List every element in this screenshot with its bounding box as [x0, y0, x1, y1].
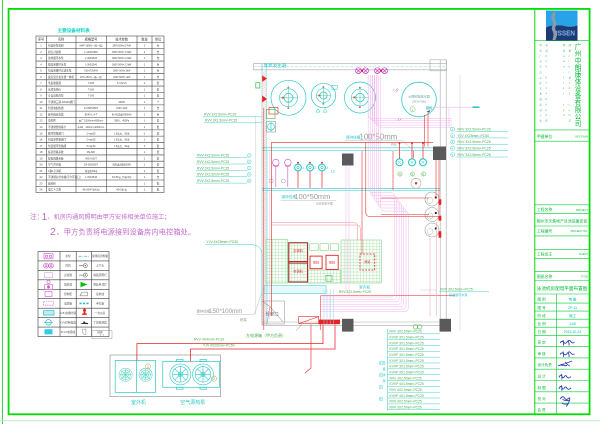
- svg-text:恒温热泵机组: 恒温热泵机组: [48, 44, 64, 48]
- svg-text:(3KW/3台): (3KW/3台): [412, 99, 426, 104]
- svg-text:主要设备材料表: 主要设备材料表: [58, 27, 91, 34]
- svg-text:400V-500T: 400V-500T: [85, 157, 97, 160]
- svg-text:40×5米-右: 40×5米-右: [116, 188, 128, 192]
- svg-text:限: 限: [575, 105, 582, 114]
- svg-text:按摩池循环水泵: 按摩池循环水泵: [48, 62, 67, 66]
- svg-text:RVV 3X2.5mm²-PC25: RVV 3X2.5mm²-PC25: [339, 290, 371, 294]
- svg-text:工程编号: 工程编号: [537, 229, 552, 234]
- svg-text:KVVP 4X1.5mm²-PC25: KVVP 4X1.5mm²-PC25: [390, 382, 424, 386]
- svg-text:工程名称: 工程名称: [537, 207, 552, 212]
- svg-text:检修口: 检修口: [266, 311, 279, 318]
- svg-text:泳池机房配电平面布置图: 泳池机房配电平面布置图: [537, 285, 588, 292]
- svg-text:全自动投药泵: 全自动投药泵: [48, 94, 64, 98]
- svg-text:RVV 3X2.5mm²-PC25: RVV 3X2.5mm²-PC25: [390, 376, 422, 380]
- svg-text:投药管路系统: 投药管路系统: [48, 150, 64, 154]
- svg-text:制 图: 制 图: [538, 385, 547, 390]
- svg-text:恒温循环水泵: 恒温循环水泵: [449, 292, 468, 297]
- svg-text:5-4.5m/h: 5-4.5m/h: [117, 82, 127, 85]
- svg-text:手孔箱: 手孔箱: [96, 301, 104, 305]
- svg-text:中: 中: [575, 56, 582, 65]
- svg-text:R.VV电源线: R.VV电源线: [61, 330, 76, 334]
- svg-text:恒温循环管路阀: 恒温循环管路阀: [48, 144, 67, 148]
- svg-text:砂缸过滤器: 砂缸过滤器: [48, 50, 61, 54]
- svg-text:12: 12: [331, 169, 336, 174]
- svg-text:m: m: [569, 115, 571, 117]
- svg-text:室内机: 室内机: [359, 284, 371, 289]
- svg-text:380V 50Hz 1.5kW: 380V 50Hz 1.5kW: [112, 51, 132, 54]
- svg-text:批: 批: [157, 181, 160, 185]
- svg-text:批: 批: [157, 125, 160, 129]
- svg-text:RVV 3X2.5mm²-PC25: RVV 3X2.5mm²-PC25: [458, 128, 491, 132]
- svg-text:CFS-150T(一拖一台): CFS-150T(一拖一台): [80, 75, 102, 79]
- svg-text:桥架: 桥架: [391, 143, 397, 147]
- svg-text:广: 广: [575, 42, 582, 51]
- svg-text:台: 台: [157, 175, 160, 179]
- svg-text:4: 4: [399, 173, 401, 177]
- svg-text:水质监测仪: 水质监测仪: [48, 87, 61, 91]
- svg-text:体: 体: [575, 77, 582, 86]
- svg-text:RVV 3X2.5mm²-PC25: RVV 3X2.5mm²-PC25: [390, 406, 422, 410]
- svg-text:水泵: 水泵: [65, 254, 71, 258]
- svg-text:D-mφ50: D-mφ50: [87, 139, 96, 142]
- svg-text:PROJECT NO.: PROJECT NO.: [571, 229, 589, 233]
- svg-text:380V、400Pa: 380V、400Pa: [114, 120, 130, 123]
- svg-text:L-700/2540: L-700/2540: [85, 176, 98, 179]
- svg-text:图 别: 图 别: [538, 297, 547, 302]
- svg-text:RVV 3X2.5mm²-PC25: RVV 3X2.5mm²-PC25: [458, 147, 491, 151]
- svg-text:丁烷探测器: 丁烷探测器: [93, 320, 107, 324]
- svg-text:KVVP 3X1.5mm²-PC25: KVVP 3X1.5mm²-PC25: [390, 347, 424, 351]
- svg-text:大棚树脂温水器: 大棚树脂温水器: [408, 94, 430, 99]
- svg-text:A-150H/250T: A-150H/250T: [84, 107, 99, 110]
- svg-text:备: 备: [575, 91, 582, 100]
- svg-text:φ110、200mm×2000mm: φ110、200mm×2000mm: [78, 126, 104, 129]
- svg-text:套: 套: [157, 131, 160, 135]
- svg-text:AQ-6725KW: AQ-6725KW: [84, 70, 98, 73]
- svg-text:台: 台: [157, 56, 160, 60]
- svg-text:2: 2: [50, 226, 56, 238]
- svg-text:·: ·: [313, 245, 314, 249]
- svg-text:L-300/2540: L-300/2540: [85, 57, 98, 60]
- svg-text:康: 康: [575, 70, 582, 79]
- svg-text:恒温池管路阀门: 恒温池管路阀门: [48, 138, 67, 142]
- svg-text:台: 台: [157, 62, 160, 66]
- svg-text:MAP-160H(一拖一低): MAP-160H(一拖一低): [80, 44, 103, 48]
- svg-text:规格型号: 规格型号: [85, 36, 98, 41]
- svg-text:1:1: 1:1: [100, 333, 105, 337]
- svg-text:1.6压力、40米: 1.6压力、40米: [114, 144, 130, 148]
- svg-text:6: 6: [422, 173, 424, 177]
- svg-text:T-300: T-300: [88, 95, 95, 98]
- svg-text:RVV 4X2.5mm²-PC25: RVV 4X2.5mm²-PC25: [390, 388, 422, 392]
- svg-text:过滤器: 过滤器: [64, 273, 72, 277]
- svg-text:风机: 风机: [65, 264, 71, 268]
- svg-text:套: 套: [157, 156, 160, 160]
- svg-text:恒温池循环过滤水泵: 恒温池循环过滤水泵: [48, 69, 72, 73]
- svg-text:1.6压力、50米: 1.6压力、50米: [114, 138, 130, 142]
- svg-text:电源箱: 电源箱: [64, 301, 72, 305]
- svg-text:校 对: 校 对: [538, 396, 547, 401]
- svg-text:套: 套: [157, 163, 160, 167]
- svg-text:数量: 数量: [141, 36, 148, 41]
- svg-text:不锈钢管抱箍卡: 不锈钢管抱箍卡: [48, 125, 67, 129]
- svg-text:毛发收集器: 毛发收集器: [48, 81, 61, 85]
- svg-text:台: 台: [157, 50, 160, 54]
- svg-text:KVVP 3X1.5mm²-PC25: KVVP 3X1.5mm²-PC25: [390, 365, 424, 369]
- svg-text:380V/50Hz/17kW: 380V/50Hz/17kW: [112, 45, 131, 48]
- svg-text:RVV 3X2.5mm²-PC25: RVV 3X2.5mm²-PC25: [458, 153, 491, 157]
- svg-text:桥架: 桥架: [240, 317, 247, 322]
- svg-text:台: 台: [157, 106, 160, 110]
- svg-text:KVVP 4X1.5mm²-PC25: KVVP 4X1.5mm²-PC25: [390, 394, 424, 398]
- svg-text:臭氧混合发生器一体机: 臭氧混合发生器一体机: [48, 75, 74, 79]
- svg-text:m: m: [563, 115, 565, 117]
- svg-text:柳州市天焦地产泳池设备安装: 柳州市天焦地产泳池设备安装: [537, 219, 588, 224]
- svg-text:RVV 3X2.5mm²-PC25: RVV 3X2.5mm²-PC25: [204, 113, 236, 117]
- svg-text:套: 套: [157, 169, 160, 173]
- svg-text:·: ·: [323, 245, 324, 249]
- svg-text:5: 5: [411, 173, 413, 177]
- svg-text:电 施: 电 施: [569, 297, 577, 302]
- svg-text:KVVP 3X1.5mm²-PC25: KVVP 3X1.5mm²-PC25: [390, 359, 424, 363]
- svg-text:D-mφ40: D-mφ40: [87, 145, 96, 148]
- svg-text:一次仪表: 一次仪表: [95, 311, 106, 315]
- svg-text:比 例: 比 例: [538, 321, 547, 326]
- svg-text:各: 各: [383, 366, 386, 371]
- svg-text:套: 套: [157, 94, 160, 98]
- svg-text:100*50mm: 100*50mm: [295, 192, 331, 201]
- svg-text:审 核: 审 核: [538, 351, 547, 356]
- svg-text:接地线: 接地线: [96, 292, 104, 296]
- svg-text:泵: 泵: [383, 378, 386, 383]
- svg-text:套: 套: [157, 81, 160, 85]
- svg-text:RVV 4X4mm²-PC32: RVV 4X4mm²-PC32: [194, 337, 224, 341]
- svg-text:设: 设: [575, 84, 582, 93]
- svg-text:不锈钢对丝水嘴(带卡环接口): 不锈钢对丝水嘴(带卡环接口): [48, 175, 81, 179]
- svg-text:州: 州: [575, 51, 582, 58]
- svg-text:KVVP 3X1.5mm²-PC25: KVVP 3X1.5mm²-PC25: [390, 341, 424, 345]
- svg-text:司: 司: [575, 120, 582, 128]
- svg-text:D-mφ50: D-mφ50: [87, 132, 96, 135]
- svg-text:暗装照明灯: 暗装照明灯: [93, 273, 107, 277]
- svg-text:1: 1: [411, 108, 413, 112]
- svg-text:施工: 施工: [569, 313, 576, 318]
- svg-text:由厂方300mm×850mm: 由厂方300mm×850mm: [79, 119, 104, 123]
- svg-text:侧装吊顶灯: 侧装吊顶灯: [93, 283, 107, 287]
- svg-text:40×50以上5米/2台: 40×50以上5米/2台: [112, 175, 132, 179]
- svg-text:KVVP 3X1.5mm²-PC25: KVVP 3X1.5mm²-PC25: [390, 371, 424, 375]
- svg-text:配电线路系统: 配电线路系统: [48, 156, 64, 160]
- svg-text:RVV 3X2.5mm²-PC25: RVV 3X2.5mm²-PC25: [441, 288, 473, 292]
- svg-text:设 计: 设 计: [538, 374, 547, 379]
- svg-text:套: 套: [157, 87, 160, 91]
- svg-text:套: 套: [157, 119, 160, 123]
- svg-text:L-300/2540: L-300/2540: [85, 63, 98, 66]
- svg-text:预留: 预留: [364, 259, 370, 264]
- svg-text:图纸名称: 图纸名称: [537, 274, 552, 279]
- svg-text:示意安装平面: 示意安装平面: [316, 202, 333, 206]
- svg-text:套: 套: [157, 138, 160, 142]
- svg-text:RVV 3X1.5mm²-PC25: RVV 3X1.5mm²-PC25: [197, 173, 229, 177]
- svg-text:照明及控制600W: 照明及控制600W: [113, 163, 132, 167]
- svg-text:RVV 4X2.5mm²-PC25: RVV 4X2.5mm²-PC25: [197, 154, 229, 158]
- svg-text:KVV控制电缆: KVV控制电缆: [60, 320, 76, 324]
- svg-text:PE-800: PE-800: [87, 151, 96, 154]
- svg-text:加热器: 加热器: [64, 283, 72, 287]
- svg-text:空气源热泵: 空气源热泵: [180, 399, 205, 406]
- svg-text:220V 50Hz 1kW: 220V 50Hz 1kW: [113, 76, 131, 79]
- svg-text:RVV 4X2.5mm²-PC25: RVV 4X2.5mm²-PC25: [197, 160, 229, 164]
- svg-text:KLB 线槽/管路: KLB 线槽/管路: [59, 311, 77, 315]
- svg-text:图 号: 图 号: [538, 305, 547, 310]
- svg-text:台: 台: [157, 112, 160, 116]
- svg-text:恒温电加热器: 恒温电加热器: [48, 106, 64, 110]
- svg-text:技术参数: 技术参数: [115, 36, 129, 41]
- svg-text:台: 台: [157, 69, 160, 73]
- svg-text:不锈钢三通-DN110阀门: 不锈钢三通-DN110阀门: [48, 100, 75, 104]
- svg-text:TITLE: TITLE: [581, 274, 588, 278]
- svg-text:1拖1空调机: 1拖1空调机: [48, 169, 62, 173]
- svg-text:现场机控制箱: 现场机控制箱: [92, 254, 108, 258]
- svg-text:会 签: 会 签: [538, 407, 547, 412]
- svg-text:台: 台: [157, 44, 160, 48]
- svg-text:控制柜: 控制柜: [64, 292, 72, 296]
- svg-text:阶 段: 阶 段: [538, 313, 547, 318]
- svg-text:空调机: 空调机: [293, 269, 303, 274]
- svg-text:220V 1kW: 220V 1kW: [116, 107, 128, 110]
- svg-text:臭氧发生器: 臭氧发生器: [264, 62, 287, 69]
- svg-text:个: 个: [157, 100, 160, 104]
- svg-text:空气开关箱: 空气开关箱: [48, 163, 61, 167]
- svg-text:3: 3: [213, 377, 215, 381]
- svg-text:1:50: 1:50: [569, 322, 576, 326]
- svg-text:KEY PLAN: KEY PLAN: [575, 135, 588, 139]
- svg-text:泵机: 泵机: [329, 260, 335, 265]
- svg-text:RVV 4X2.5mm²-PC25: RVV 4X2.5mm²-PC25: [390, 400, 422, 404]
- svg-text:CLIENT: CLIENT: [579, 252, 589, 256]
- svg-text:上下水: 上下水: [96, 264, 104, 268]
- svg-text:3: 3: [326, 166, 328, 170]
- svg-text:380V 50Hz 3kW: 380V 50Hz 3kW: [113, 70, 131, 73]
- svg-text:日 期: 日 期: [538, 329, 547, 334]
- svg-text:批: 批: [157, 188, 160, 192]
- svg-text:单位: 单位: [155, 36, 162, 41]
- svg-text:T-300: T-300: [88, 88, 95, 91]
- svg-text:YJV 4X25mm²-PC50: YJV 4X25mm²-PC50: [458, 134, 490, 138]
- svg-text:室外机: 室外机: [131, 399, 146, 406]
- svg-text:循环管路阀门: 循环管路阀门: [48, 131, 64, 135]
- svg-text:1.6压力、50米: 1.6压力、50米: [114, 131, 130, 135]
- svg-text:电工人工费: 电工人工费: [48, 188, 61, 192]
- svg-text:80-95迁移/550kVA: 80-95迁移/550kVA: [112, 112, 132, 116]
- svg-text:工程业主: 工程业主: [537, 252, 552, 257]
- svg-text:KVVP 3X1.5mm²-PC25: KVVP 3X1.5mm²-PC25: [390, 353, 424, 357]
- svg-text:左电源箱（甲方负责）: 左电源箱（甲方负责）: [246, 332, 286, 338]
- svg-text:PROJECT: PROJECT: [576, 208, 589, 212]
- svg-text:L-1400/2540: L-1400/2540: [84, 51, 98, 54]
- svg-text:RVV 3X2.5mm²-PC25: RVV 3X2.5mm²-PC25: [197, 166, 229, 170]
- svg-text:、甲方负责将电源接到设备房内电控箱处。: 、甲方负责将电源接到设备房内电控箱处。: [57, 228, 196, 237]
- svg-text:朗: 朗: [575, 63, 582, 72]
- svg-text:2: 2: [314, 166, 316, 170]
- svg-text:BX40-L-A-T: BX40-L-A-T: [85, 113, 98, 116]
- svg-text:40×50/47米/(含): 40×50/47米/(含): [82, 188, 99, 192]
- svg-text:辅材料: 辅材料: [48, 181, 56, 185]
- svg-text:1: 1: [302, 166, 304, 170]
- svg-text:审 定: 审 定: [538, 340, 547, 345]
- svg-text:YJV 4X25mm²-PC50: YJV 4X25mm²-PC50: [203, 344, 235, 348]
- svg-text:套: 套: [157, 150, 160, 154]
- svg-text:空调机: 空调机: [293, 248, 303, 253]
- svg-text:2: 2: [147, 365, 149, 369]
- svg-text:紫外线消毒器: 紫外线消毒器: [48, 112, 64, 116]
- svg-text:ZP-11: ZP-11: [568, 306, 577, 310]
- svg-text:DN65: DN65: [119, 101, 126, 104]
- svg-text:公: 公: [575, 114, 582, 121]
- svg-text:甲建单位: 甲建单位: [537, 134, 552, 139]
- svg-text:RVV 4X2.5mm²-PC25: RVV 4X2.5mm²-PC25: [458, 140, 491, 144]
- svg-text:有: 有: [575, 98, 582, 107]
- svg-text:RVV 3X2.5mm²-PC25: RVV 3X2.5mm²-PC25: [390, 330, 422, 334]
- svg-text:·: ·: [333, 245, 334, 249]
- svg-text:套: 套: [157, 144, 160, 148]
- svg-text:380V 50Hz 2.2kW: 380V 50Hz 2.2kW: [112, 57, 132, 60]
- svg-text:KVVP 3X1.5mm²-PC25: KVVP 3X1.5mm²-PC25: [390, 335, 424, 339]
- svg-text:DX-600/800T: DX-600/800T: [84, 164, 99, 167]
- svg-text:、机房内通风照明由甲方安排相关单位施工；: 、机房内通风照明由甲方安排相关单位施工；: [48, 213, 171, 221]
- svg-text:名称: 名称: [58, 36, 65, 41]
- svg-text:恒温泵40kg: 恒温泵40kg: [85, 169, 98, 173]
- svg-text:T-200: T-200: [88, 82, 95, 85]
- svg-text:380V 50Hz 2.2kW: 380V 50Hz 2.2kW: [112, 63, 132, 66]
- svg-text:电控柜: 电控柜: [48, 119, 56, 123]
- svg-text:序号: 序号: [38, 36, 44, 41]
- svg-text:设计负责: 设计负责: [538, 362, 553, 367]
- svg-text:泵机: 泵机: [313, 260, 319, 265]
- svg-text:台: 台: [157, 75, 160, 79]
- svg-text:泳池循环水泵: 泳池循环水泵: [48, 56, 64, 60]
- svg-text:RVV 3X1.5mm²-PC25: RVV 3X1.5mm²-PC25: [205, 119, 237, 123]
- svg-text:YJV 4X25mm²-PC50: YJV 4X25mm²-PC50: [207, 240, 239, 244]
- svg-text:2013-10-24: 2013-10-24: [564, 330, 581, 334]
- svg-text:RVV 3X1.5mm²-PC25: RVV 3X1.5mm²-PC25: [197, 179, 229, 183]
